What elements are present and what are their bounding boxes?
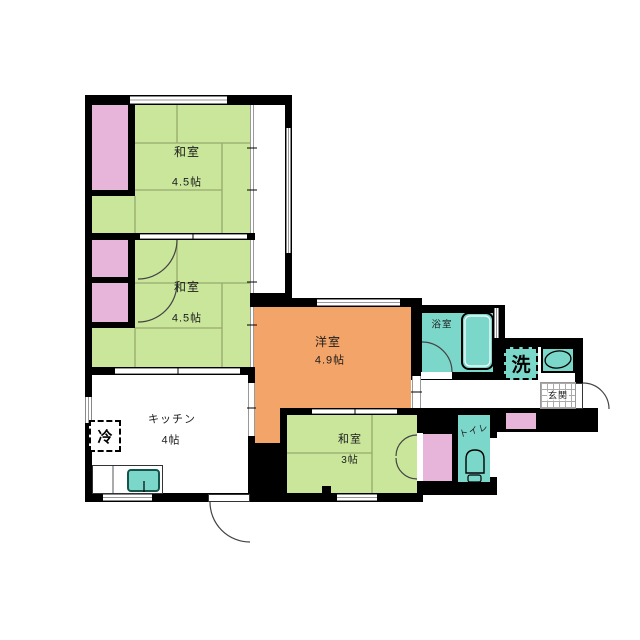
wall-segment [85, 190, 135, 196]
hallway-floor [422, 380, 540, 408]
wall-segment [248, 435, 255, 502]
closet-5 [505, 412, 537, 430]
wall-segment [453, 433, 458, 482]
wall-segment [417, 305, 505, 313]
room-label-entrance: 玄関 [547, 392, 569, 401]
room-washitsu-3-floor [287, 415, 417, 493]
room-label-washitsu-3: 和室 [338, 435, 362, 446]
wall-segment [128, 240, 135, 328]
wall-segment [417, 415, 458, 433]
wall-segment [322, 486, 331, 494]
refrigerator-box: 冷 [89, 420, 121, 452]
kitchen-back-door-arc [210, 502, 250, 542]
wall-segment [423, 408, 497, 415]
room-label-youshitsu: 洋室 [315, 336, 341, 348]
sliding-door [248, 383, 255, 436]
corridor-floor [254, 105, 285, 293]
window [317, 299, 400, 306]
wall-segment [85, 322, 135, 328]
room-youshitsu-floor-extension [253, 408, 280, 444]
floor-plan: 冷 洗 [0, 0, 640, 640]
room-size-washitsu-2: 4.5帖 [172, 314, 202, 325]
kitchen-back-door [208, 494, 250, 502]
fusuma-door [140, 234, 247, 239]
refrigerator-label: 冷 [97, 426, 112, 447]
window [286, 128, 291, 253]
room-label-kitchen: キッチン [148, 415, 196, 426]
front-door [575, 383, 583, 409]
front-door-arc [583, 383, 609, 409]
washing-machine-box: 洗 [504, 347, 538, 380]
closet-2 [92, 240, 128, 277]
room-size-washitsu-3: 3帖 [341, 456, 359, 466]
fusuma-door [312, 409, 397, 414]
sliding-door [412, 376, 421, 408]
room-size-washitsu-1: 4.5帖 [172, 178, 202, 189]
wall-segment [504, 338, 583, 347]
fusuma-door [115, 368, 240, 374]
closet-door-opening [417, 433, 423, 481]
wall-segment [85, 277, 128, 283]
door-opening [421, 372, 452, 379]
wall-segment [250, 293, 292, 307]
wall-segment [411, 302, 422, 380]
window [337, 494, 377, 501]
window [130, 96, 227, 104]
window [103, 494, 152, 501]
washing-machine-label: 洗 [511, 350, 530, 377]
toilet-door [490, 438, 497, 477]
wash-basin [541, 347, 575, 373]
wall-segment [128, 105, 135, 196]
room-size-kitchen: 4帖 [161, 436, 180, 447]
room-label-washitsu-1: 和室 [174, 146, 200, 158]
wall-segment [280, 408, 287, 502]
kitchen-sink [127, 469, 160, 492]
closet-1 [92, 105, 128, 190]
wall-segment [575, 338, 583, 384]
wall-segment [417, 482, 497, 495]
closet-4 [422, 433, 453, 482]
room-label-washitsu-2: 和室 [174, 281, 200, 293]
closet-3 [92, 283, 128, 322]
room-label-bathroom: 浴室 [431, 320, 452, 330]
room-size-youshitsu: 4.9帖 [315, 356, 345, 367]
window [494, 308, 499, 338]
